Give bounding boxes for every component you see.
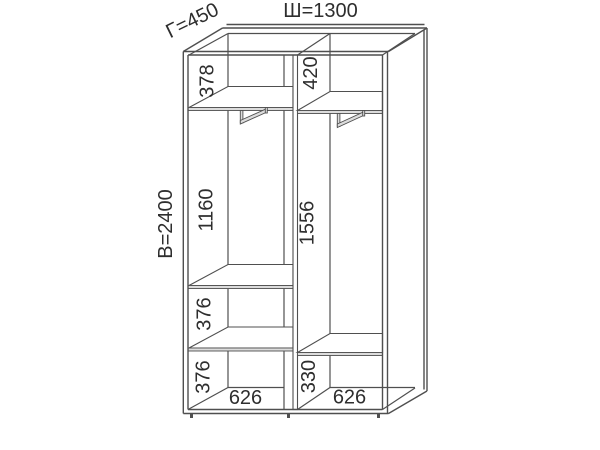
overall-height-label: В=2400 bbox=[155, 189, 177, 259]
foot bbox=[190, 414, 193, 419]
left-compartment-width-label: 626 bbox=[229, 387, 262, 409]
left-shelf-section-height-label: 376 bbox=[194, 297, 216, 330]
left-hanging-section-height-label: 1160 bbox=[196, 188, 218, 231]
wardrobe-dimension-diagram: Ш=1300 Г=450 В=2400 378 1160 376 376 626… bbox=[0, 0, 600, 450]
left-top-section-height-label: 378 bbox=[197, 64, 219, 97]
right-bottom-section-height-label: 330 bbox=[298, 360, 320, 393]
left-bottom-section-height-label: 376 bbox=[193, 360, 215, 393]
foot bbox=[377, 414, 380, 419]
overall-width-label: Ш=1300 bbox=[283, 0, 358, 22]
foot bbox=[287, 414, 290, 419]
drawing-canvas: Ш=1300 Г=450 В=2400 378 1160 376 376 626… bbox=[0, 0, 600, 450]
right-compartment-width-label: 626 bbox=[333, 387, 366, 409]
right-hanging-section-height-label: 1556 bbox=[297, 201, 319, 246]
right-top-section-height-label: 420 bbox=[300, 56, 322, 89]
